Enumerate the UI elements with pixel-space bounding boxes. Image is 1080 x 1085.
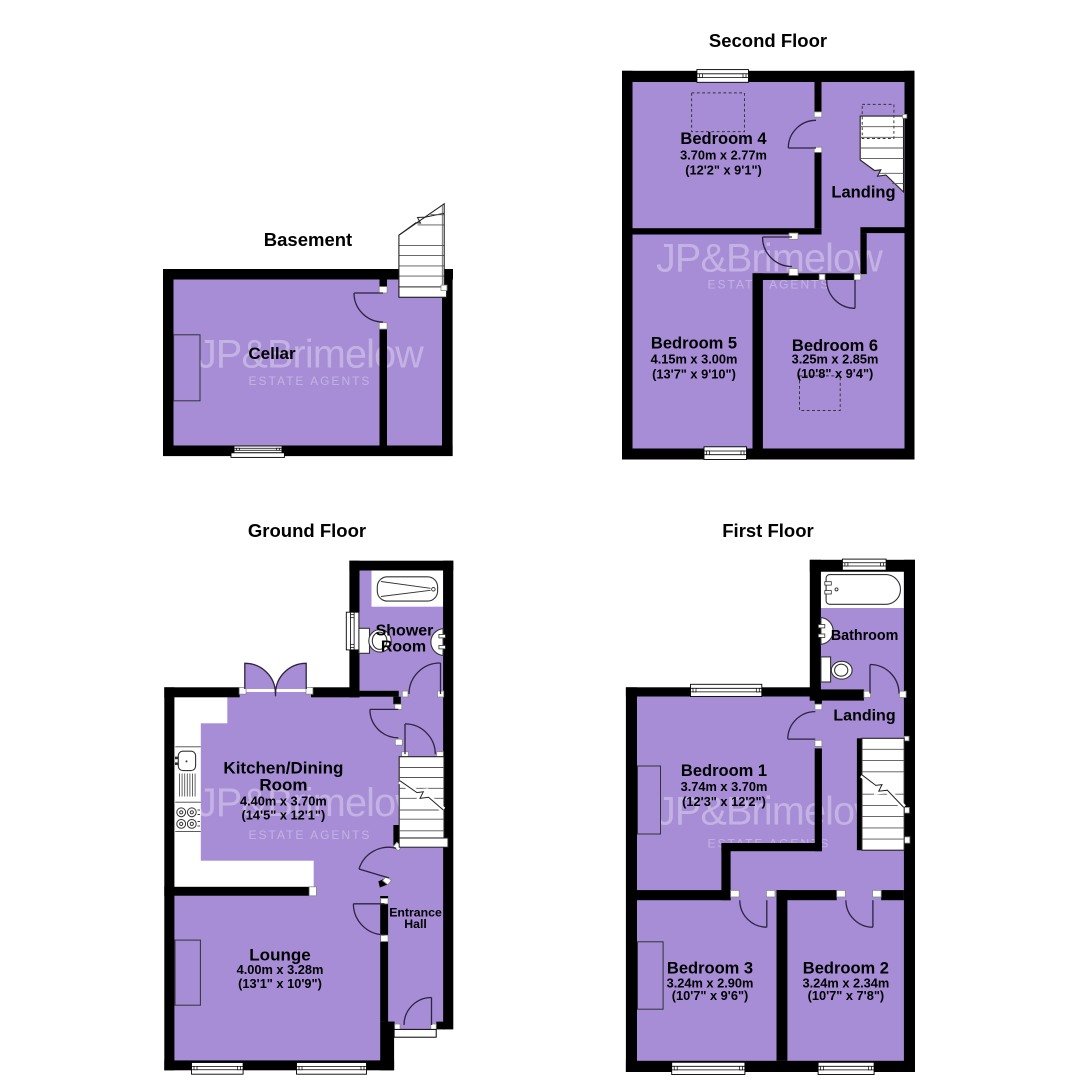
svg-text:(10'7" x 7'8"): (10'7" x 7'8") <box>808 988 885 1003</box>
svg-text:Second Floor: Second Floor <box>709 30 827 51</box>
svg-text:Landing: Landing <box>833 708 895 725</box>
svg-text:Cellar: Cellar <box>248 344 296 363</box>
svg-text:Basement: Basement <box>264 229 352 250</box>
svg-text:ESTATE AGENTS: ESTATE AGENTS <box>249 828 372 842</box>
svg-text:(10'8" x 9'4"): (10'8" x 9'4") <box>797 366 874 381</box>
svg-text:(13'1" x 10'9"): (13'1" x 10'9") <box>238 976 322 991</box>
svg-text:3.74m x 3.70m: 3.74m x 3.70m <box>681 779 768 794</box>
svg-text:3.70m x 2.77m: 3.70m x 2.77m <box>680 148 767 163</box>
svg-text:Bedroom 1: Bedroom 1 <box>681 762 767 780</box>
svg-text:(14'5" x 12'1"): (14'5" x 12'1") <box>242 808 326 823</box>
svg-text:(10'7" x 9'6"): (10'7" x 9'6") <box>672 988 749 1003</box>
svg-text:Bathroom: Bathroom <box>831 628 899 644</box>
svg-text:Ground Floor: Ground Floor <box>248 520 366 541</box>
svg-text:Landing: Landing <box>831 184 895 202</box>
svg-text:Bedroom 4: Bedroom 4 <box>680 130 767 148</box>
svg-text:Room: Room <box>259 776 307 795</box>
svg-text:4.15m x 3.00m: 4.15m x 3.00m <box>651 351 738 366</box>
svg-text:Hall: Hall <box>404 917 427 931</box>
svg-text:Shower: Shower <box>376 623 434 640</box>
svg-text:(12'2" x 9'1"): (12'2" x 9'1") <box>685 163 762 178</box>
svg-text:First Floor: First Floor <box>722 520 813 541</box>
svg-text:(13'7" x 9'10"): (13'7" x 9'10") <box>652 366 736 381</box>
svg-text:4.40m x 3.70m: 4.40m x 3.70m <box>240 794 327 809</box>
svg-text:Room: Room <box>381 639 426 656</box>
svg-text:ESTATE AGENTS: ESTATE AGENTS <box>249 374 372 388</box>
svg-text:4.00m x 3.28m: 4.00m x 3.28m <box>237 962 324 977</box>
svg-text:Bedroom 5: Bedroom 5 <box>651 335 737 353</box>
svg-text:JP&Brimelow: JP&Brimelow <box>197 333 424 377</box>
svg-text:3.25m x 2.85m: 3.25m x 2.85m <box>792 351 879 366</box>
svg-text:(12'3" x 12'2"): (12'3" x 12'2") <box>682 794 766 809</box>
